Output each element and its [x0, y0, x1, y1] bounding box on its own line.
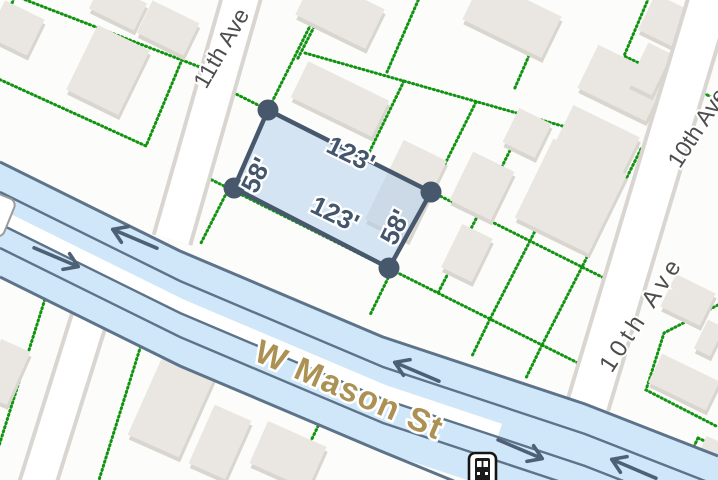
parcel-corner-handle[interactable] [421, 182, 442, 203]
parcel-map: 123' 123' 58' 58' W Mason St 11th Ave 10… [0, 0, 718, 480]
parcel-corner-handle[interactable] [258, 100, 279, 121]
parcel-corner-handle[interactable] [379, 258, 400, 279]
map-canvas[interactable]: 123' 123' 58' 58' W Mason St 11th Ave 10… [0, 0, 718, 480]
bus-transit-stop-icon[interactable] [469, 453, 496, 480]
